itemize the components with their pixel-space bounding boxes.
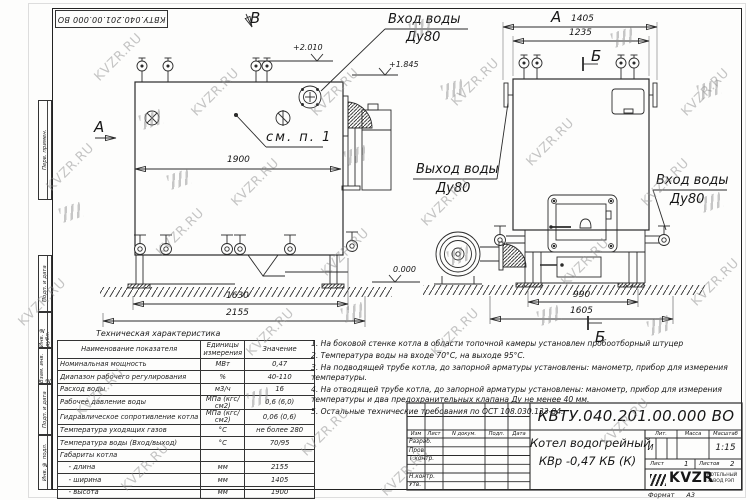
table-row: Диапазон рабочего регулирования%40-110: [58, 371, 315, 383]
tech-col-header: Единицы измерения: [201, 341, 245, 359]
table-row: Номинальная мощностьМВт0,47: [58, 359, 315, 371]
dim-1405-label: 1405: [571, 15, 594, 24]
scale-header: Масштаб: [709, 432, 742, 437]
dim-1630-label: 1630: [226, 292, 249, 301]
top-stamp-text: КВТУ.040.201.00.000 ВО: [56, 11, 167, 27]
margin-cell-inv-podl: Инв. № подл.: [38, 435, 52, 490]
tech-col-header: Значение: [245, 341, 315, 359]
outlet-label-line1: Выход воды: [416, 163, 499, 176]
company-line1: КОТЕЛЬНЫЙ: [707, 474, 737, 479]
row-nkontr: Н.контр.: [409, 475, 435, 481]
col-data: Дата: [508, 432, 530, 437]
cell-divider: [47, 256, 48, 311]
tech-table: Наименование показателя Единицы измерени…: [57, 340, 315, 499]
margin-cell-podp-data2: Подп. и дата: [38, 384, 52, 435]
col-ndokum: N докум.: [443, 432, 485, 437]
table-row: - высотамм1900: [58, 486, 315, 498]
table-row: Габариты котла: [58, 449, 315, 461]
section-b-top-label: Б: [591, 49, 601, 64]
product-name-line2: КВр -0,47 КБ (К): [530, 456, 645, 468]
table-row: - длинамм2155: [58, 461, 315, 473]
inlet-top-label-line2: Ду80: [406, 31, 440, 44]
tech-col-header: Наименование показателя: [58, 341, 201, 359]
level-zero-label: 0.000: [393, 266, 416, 274]
margin-cell-inv-dubl: Инв. № дубл.: [38, 312, 52, 348]
scale-value: 1:15: [709, 444, 742, 453]
row-razrab: Разраб.: [409, 440, 432, 446]
view-a-label-right: А: [551, 10, 561, 25]
sheet-edge: [28, 3, 746, 4]
elevation-1845-label: +1.845: [389, 61, 419, 69]
dim-2155-label: 2155: [226, 309, 249, 318]
inlet-right-label-line1: Вход воды: [656, 174, 729, 187]
col-podp: Подп.: [485, 432, 508, 437]
row-prov: Пров.: [409, 449, 426, 455]
cell-divider: [47, 385, 48, 434]
table-row: - ширинамм1405: [58, 474, 315, 486]
dim-990-label: 990: [573, 291, 590, 300]
dim-1900-label: 1900: [227, 156, 250, 165]
see-note-label: см. п. 1: [266, 131, 332, 144]
row-tkontr: Т.контр.: [409, 457, 434, 463]
sheet-label: Лист: [650, 462, 664, 468]
sheets-label: Листов: [699, 462, 720, 468]
note-3: 3. На подводящей трубе котла, до запорно…: [311, 363, 739, 384]
table-row: Температура уходящих газов°Сне более 280: [58, 425, 315, 437]
format-value: А3: [686, 491, 695, 499]
cell-divider: [47, 101, 48, 199]
sheet-edge: [28, 3, 29, 497]
elevation-2010-label: +2.010: [293, 44, 323, 52]
margin-cell-perv-primen: Перв. примен.: [38, 100, 52, 200]
cell-divider: [47, 436, 48, 489]
mass-header: Масса: [677, 432, 709, 437]
margin-cell-vzam-inv: Взам. инв. №: [38, 348, 52, 384]
table-row: Гидравлическое сопротивление котлаМПа (к…: [58, 410, 315, 425]
col-list: Лист: [425, 432, 443, 437]
sheet-value: 1: [684, 461, 688, 468]
sheets-value: 2: [730, 461, 734, 468]
outlet-label-line2: Ду80: [436, 182, 470, 195]
view-b-label: В: [250, 11, 260, 26]
sheet-edge: [745, 3, 746, 497]
inlet-top-label-line1: Вход воды: [388, 13, 461, 26]
dim-1605-label: 1605: [570, 307, 593, 316]
cell-divider: [47, 313, 48, 347]
view-a-marker-left: А: [94, 120, 104, 135]
table-row: Рабочее давление водыМПа (кгс/см2)0,6 (6…: [58, 395, 315, 410]
row-utv: Утв.: [409, 483, 421, 489]
dim-1235-label: 1235: [569, 29, 592, 38]
designation: КВТУ.040.201.00.000 ВО: [531, 404, 741, 429]
note-1: 1. На боковой стенке котла в области топ…: [311, 339, 739, 349]
top-stamp: КВТУ.040.201.00.000 ВО: [55, 10, 168, 28]
drawing-sheet: КВТУ.040.201.00.000 ВО Перв. примен. Под…: [0, 0, 750, 500]
kvzr-logo-icon: [650, 474, 666, 486]
format-label: Формат А3: [648, 491, 695, 499]
table-row: Температура воды (Вход/выход)°С70/95: [58, 437, 315, 449]
tech-table-title: Техническая характеристика: [96, 329, 220, 338]
table-row: Расход водым3/ч16: [58, 383, 315, 395]
col-izm: Изм: [407, 432, 425, 437]
product-name-line1: Котел водогрейный: [530, 438, 645, 450]
lit-value: И: [645, 444, 656, 452]
cell-divider: [47, 349, 48, 383]
note-4: 4. На отводящей трубе котла, до запорной…: [311, 385, 739, 406]
note-2: 2. Температура воды на входе 70°С, на вы…: [311, 351, 739, 361]
lit-header: Лит.: [645, 432, 677, 437]
company-line2: ЗАВОД РЭП: [707, 480, 734, 485]
inlet-right-label-line2: Ду80: [670, 193, 704, 206]
margin-cell-podp-data: Подп. и дата: [38, 255, 52, 312]
